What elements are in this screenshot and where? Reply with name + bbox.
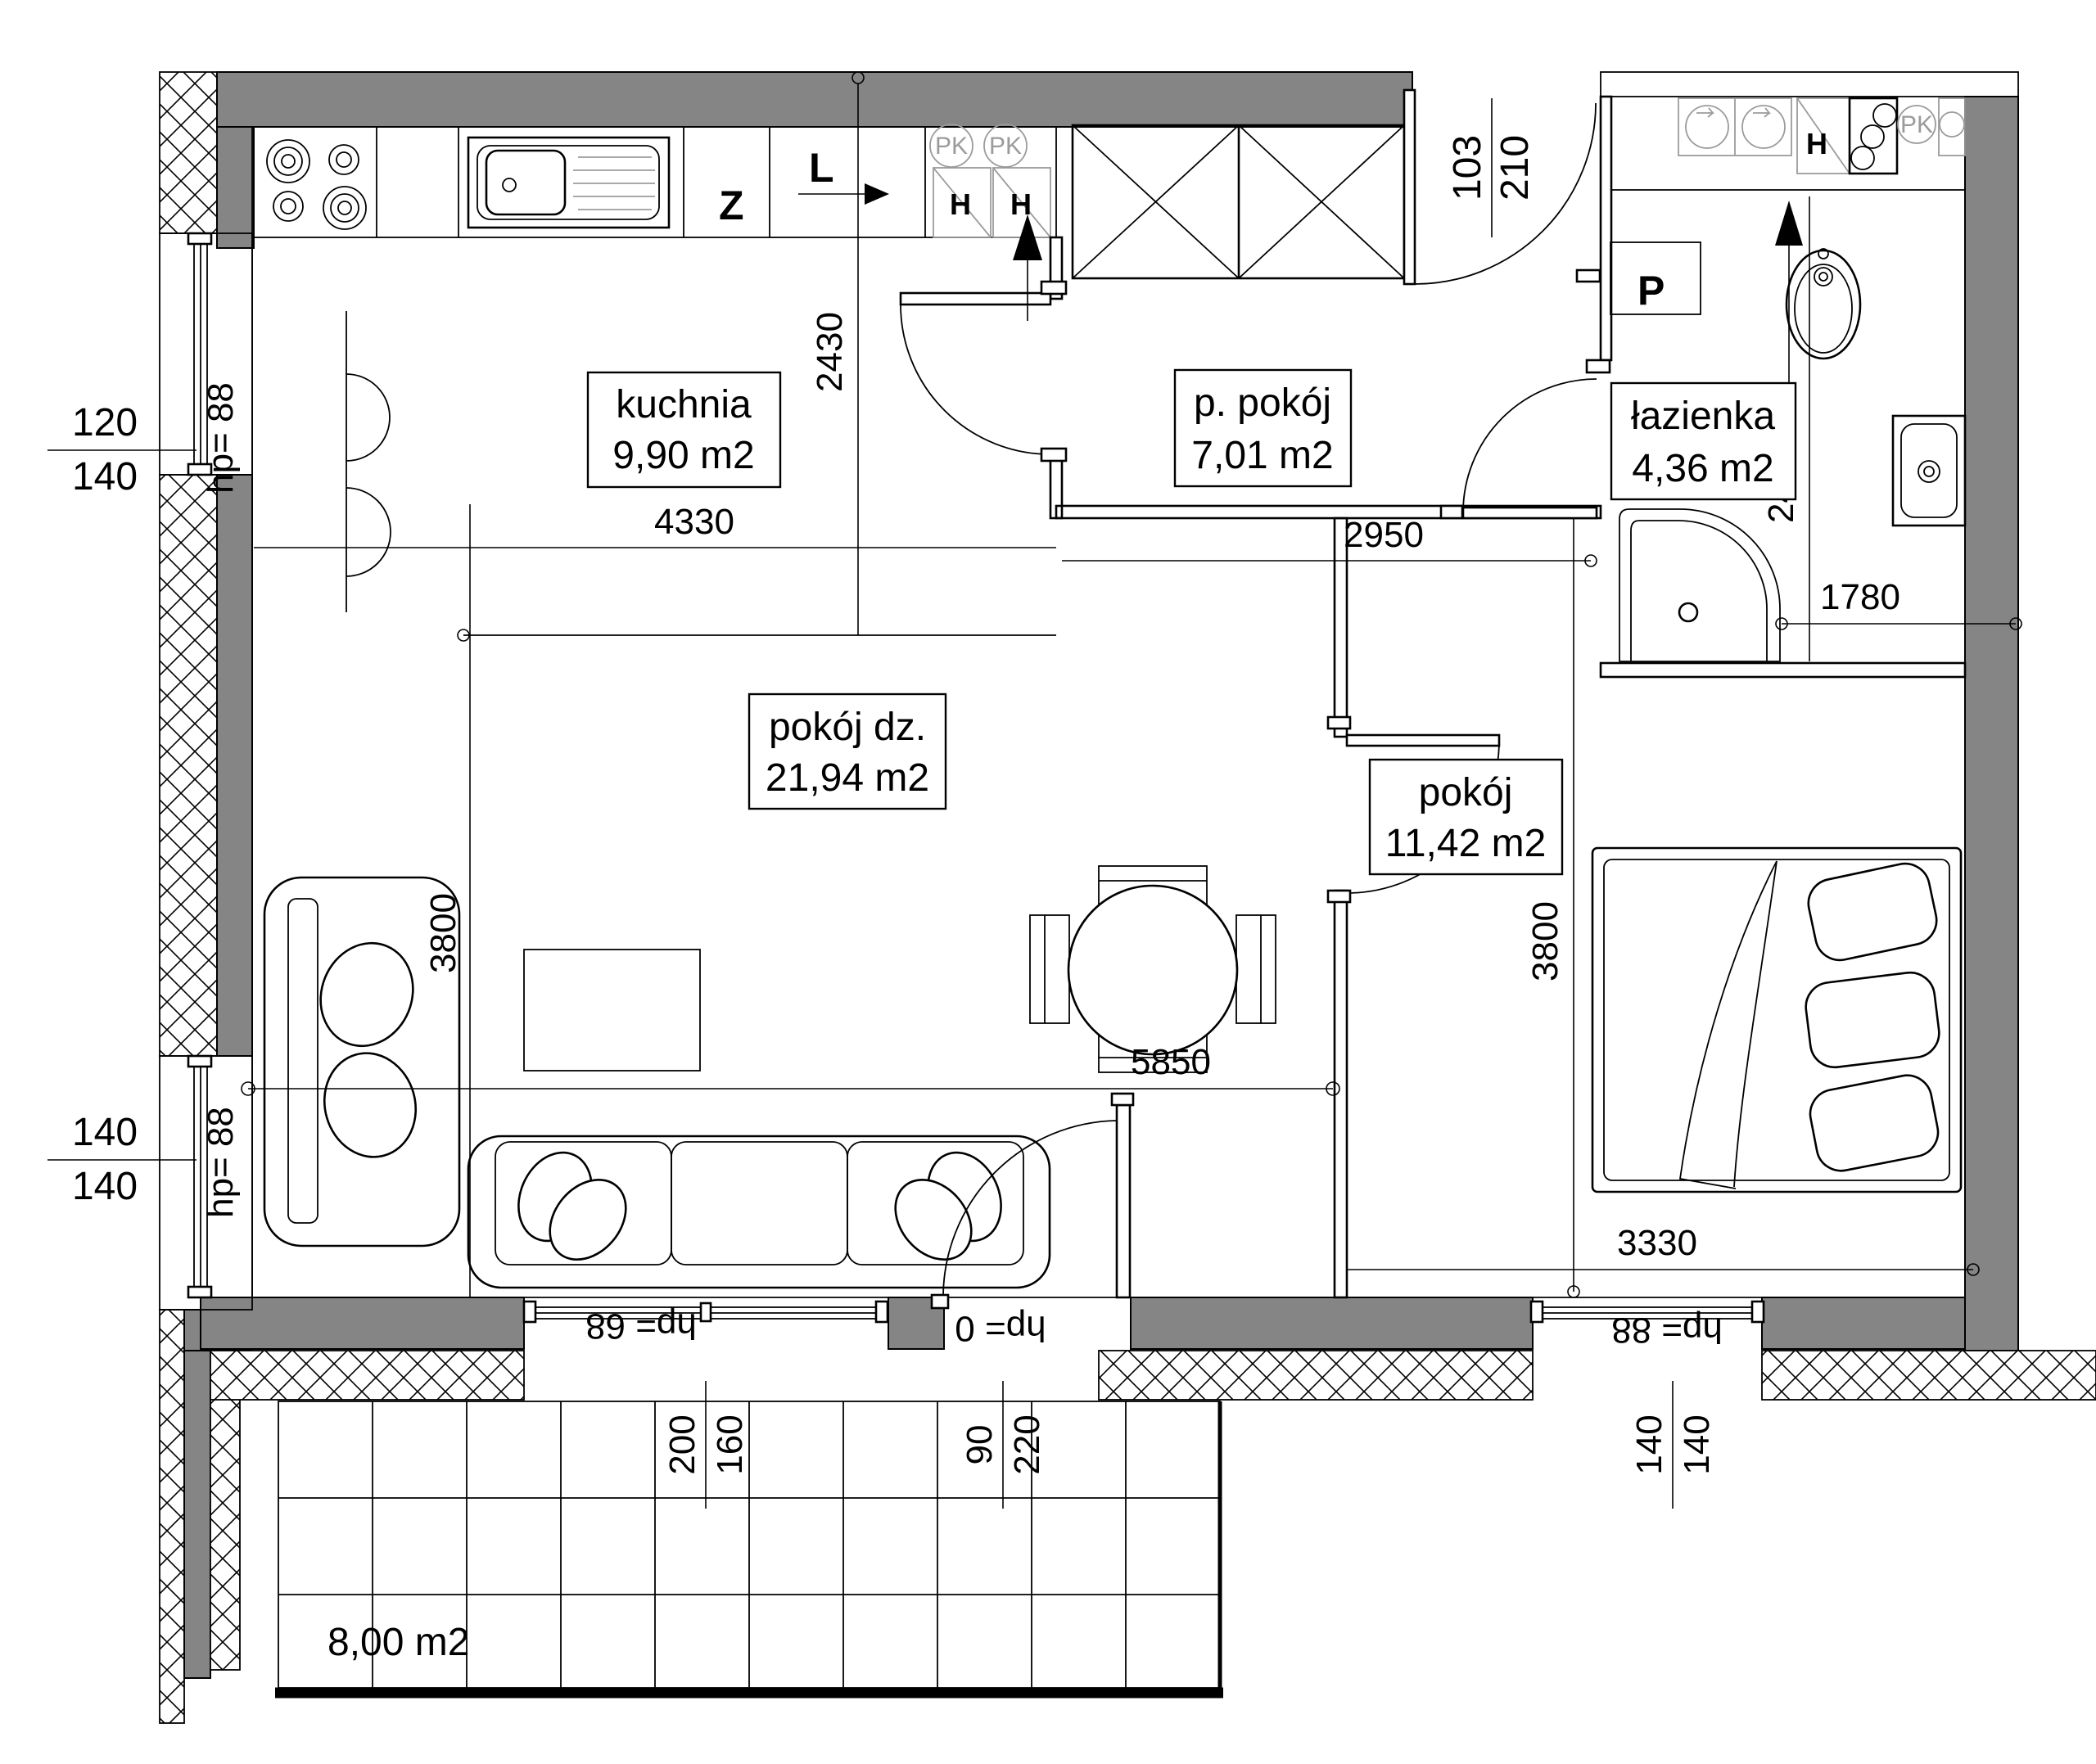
win-living-height: 160 (710, 1414, 750, 1474)
win-lt-width: 120 (72, 401, 138, 444)
win-living-width: 200 (662, 1414, 702, 1474)
balc-door-width: 90 (960, 1425, 1000, 1465)
dim-5850: 5850 (1131, 1042, 1211, 1082)
win-bed-height: 140 (1677, 1414, 1717, 1474)
room-label-pokoj: pokój 11,42 m2 (1370, 760, 1562, 874)
dim-bedroom-width: 3330 (1347, 1223, 1979, 1275)
sofa (468, 1136, 1050, 1288)
dim-3800-bedroom: 3800 (1525, 901, 1565, 981)
win-bed-sill: hp= 88 (1611, 1310, 1723, 1350)
dim-hall-width: 2950 (1062, 515, 1597, 566)
heater-symbol: H (1806, 127, 1827, 160)
sink-icon (468, 138, 669, 228)
sink-symbol: Z (719, 183, 744, 228)
entrance-door-label: 103 210 (1446, 98, 1537, 237)
label-window-bedroom: hp= 88 140 140 (1611, 1310, 1723, 1509)
room-label-kuchnia: kuchnia 9,90 m2 (588, 372, 780, 487)
entrance-height: 210 (1493, 135, 1537, 201)
dim-kitchen-width: 4330 (254, 502, 1056, 548)
shower-icon (1619, 509, 1780, 661)
bedroom-walls (1335, 518, 1347, 1297)
entrance-width: 103 (1446, 135, 1489, 201)
kitchen-pk-heater-cabinet: PK PK H H (930, 124, 1050, 237)
dim-4330: 4330 (654, 502, 734, 542)
bath-heater-cabinet: H PK (1797, 98, 1965, 174)
lazienka-area: 4,36 m2 (1632, 447, 1773, 490)
win-living-sill: hp= 68 (585, 1306, 697, 1346)
dim-2950: 2950 (1344, 515, 1424, 555)
pokoj-area: 11,42 m2 (1385, 822, 1547, 865)
pokoj-dz-area: 21,94 m2 (766, 756, 929, 800)
balc-door-sill: hp= 0 (955, 1308, 1046, 1348)
washer-symbol: P (1637, 268, 1665, 314)
win-lb-sill: hp= 88 (201, 1107, 241, 1218)
lazienka-name: łazienka (1631, 395, 1775, 438)
room-label-lazienka: łazienka 4,36 m2 (1611, 383, 1796, 499)
bed (1592, 848, 1961, 1192)
przedpokoj-area: 7,01 m2 (1191, 434, 1333, 477)
label-window-left-top: 120 140 hp= 88 (47, 382, 241, 499)
washing-machine-spot: P (1610, 242, 1701, 314)
kitchen-door (901, 282, 1066, 461)
heater-symbol: H (950, 187, 971, 221)
washer-dryer-icon (1678, 98, 1791, 156)
win-lt-sill: hp= 88 (201, 382, 241, 494)
vent-symbol: L (809, 145, 834, 191)
win-bed-width: 140 (1629, 1414, 1669, 1474)
win-lt-height: 140 (72, 455, 138, 499)
window-living-south (524, 1302, 888, 1322)
washbasin-icon (1893, 416, 1965, 526)
label-balcony-door: hp= 0 90 220 (955, 1308, 1047, 1509)
dim-2430: 2430 (810, 312, 850, 392)
dim-3800-living: 3800 (423, 893, 463, 973)
kuchnia-area: 9,90 m2 (612, 434, 754, 477)
pk-symbol: PK (1900, 111, 1933, 138)
balc-door-height: 220 (1007, 1414, 1047, 1474)
coffee-table (524, 950, 700, 1071)
label-window-left-bottom: 140 140 hp= 88 (47, 1107, 241, 1218)
stove-icon (267, 140, 366, 229)
pokoj-name: pokój (1419, 771, 1513, 814)
kitchen-tall-cabinet (346, 311, 391, 612)
wardrobe (1073, 125, 1404, 278)
balcony-area: 8,00 m2 (327, 1621, 469, 1664)
pk-symbol: PK (989, 133, 1022, 160)
label-window-living: hp= 68 200 160 (585, 1306, 750, 1509)
room-label-pokoj-dzienny: pokój dz. 21,94 m2 (749, 694, 946, 809)
dim-1780: 1780 (1820, 577, 1900, 617)
win-lb-width: 140 (72, 1111, 138, 1154)
floor-plan-page: Z L PK PK H H (0, 0, 2096, 1764)
pokoj-dz-name: pokój dz. (769, 706, 926, 749)
floor-plan: Z L PK PK H H (0, 0, 2096, 1764)
win-lb-height: 140 (72, 1165, 138, 1208)
dim-bedroom-depth: 3800 (1525, 518, 1579, 1297)
kuchnia-name: kuchnia (616, 383, 752, 426)
przedpokoj-name: p. pokój (1194, 381, 1331, 425)
toilet-icon (1787, 249, 1860, 359)
room-label-przedpokoj: p. pokój 7,01 m2 (1175, 370, 1351, 486)
heater-symbol: H (1010, 187, 1032, 221)
pk-symbol: PK (935, 133, 968, 160)
dim-3330: 3330 (1617, 1223, 1697, 1263)
bathroom-door (1441, 360, 1610, 518)
bed-pillows (1803, 859, 1942, 1175)
